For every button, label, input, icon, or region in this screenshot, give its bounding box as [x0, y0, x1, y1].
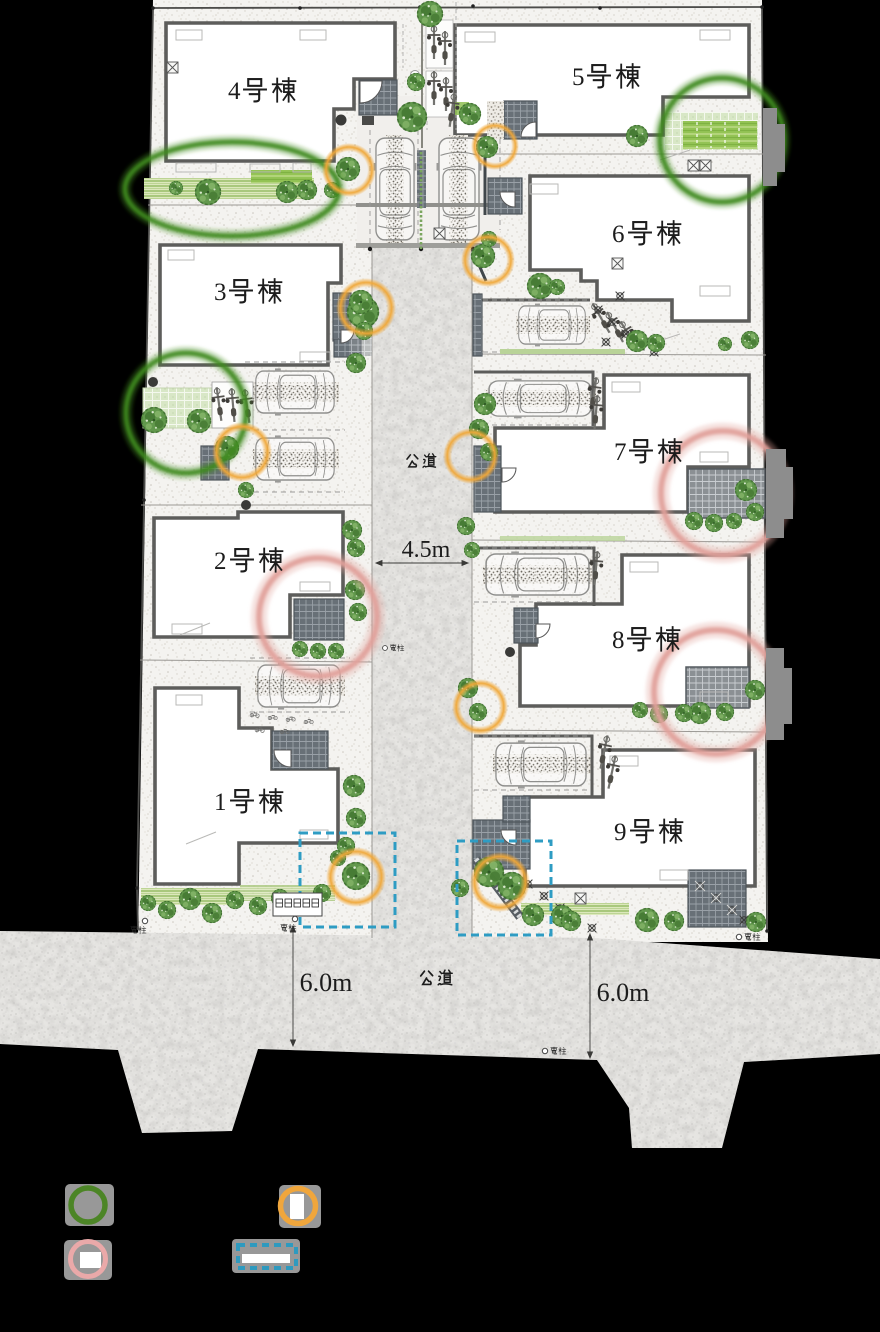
svg-text:4.5m: 4.5m	[402, 537, 451, 563]
svg-text:4: 4	[228, 78, 241, 105]
svg-text:6: 6	[612, 221, 625, 248]
svg-text:7: 7	[614, 439, 627, 466]
svg-text:3: 3	[214, 279, 227, 306]
svg-text:6.0m: 6.0m	[597, 978, 650, 1007]
svg-text:2: 2	[214, 548, 227, 575]
svg-text:5: 5	[572, 64, 585, 91]
svg-text:1: 1	[214, 789, 227, 816]
svg-text:6.0m: 6.0m	[300, 968, 353, 997]
svg-text:9: 9	[614, 819, 627, 846]
svg-text:8: 8	[612, 627, 625, 654]
